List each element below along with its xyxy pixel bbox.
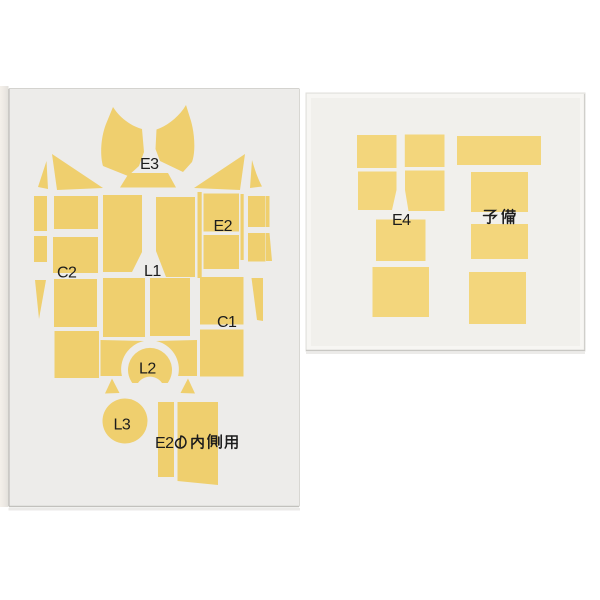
svg-text:E2: E2 — [155, 435, 174, 452]
svg-text:E2: E2 — [214, 218, 233, 235]
svg-text:C1: C1 — [217, 314, 237, 331]
svg-text:L3: L3 — [114, 417, 131, 434]
svg-text:L2: L2 — [139, 361, 156, 378]
svg-text:L1: L1 — [144, 263, 161, 280]
svg-text:C2: C2 — [57, 265, 77, 282]
svg-text:E3: E3 — [140, 156, 159, 173]
svg-text:E4: E4 — [392, 212, 411, 229]
